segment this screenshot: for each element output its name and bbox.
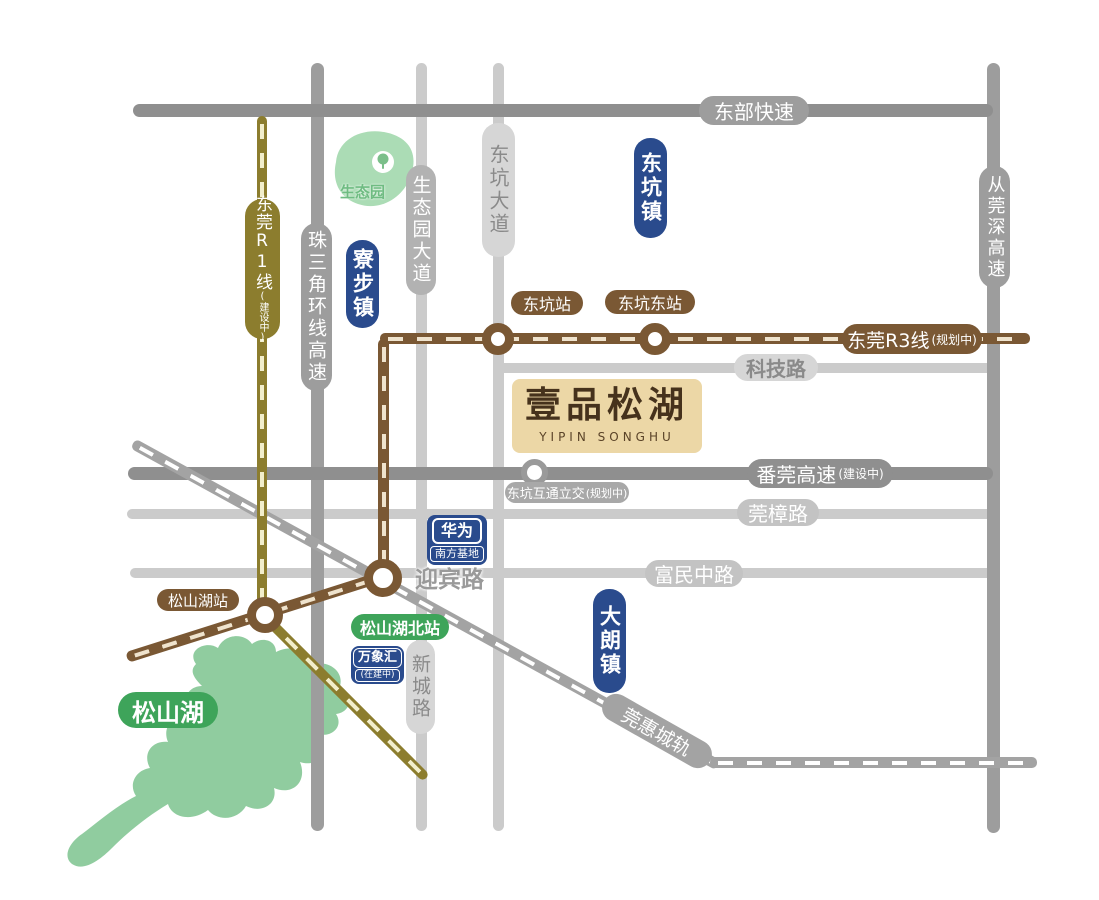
road-label-dongbu: 东部快速 xyxy=(699,96,809,125)
station-label-dongkeng-east-text: 东坑东站 xyxy=(618,290,682,314)
town-label-liaobu: 寮步镇 xyxy=(346,240,379,328)
road-label-xincheng: 新城路 xyxy=(406,640,435,734)
road-label-dongkengdadao-text: 东坑大道 xyxy=(484,144,513,236)
rail-r3-vertical xyxy=(378,339,389,580)
road-label-guanzhang-text: 莞樟路 xyxy=(748,498,808,527)
ecopark-label: 生态园 xyxy=(340,181,385,202)
road-label-fumin-text: 富民中路 xyxy=(654,559,734,588)
project-card: 壹品松湖 YIPIN SONGHU xyxy=(512,379,702,453)
town-label-dalang-text: 大朗镇 xyxy=(595,605,625,677)
poi-huawei-label: 华为 xyxy=(432,518,482,544)
road-label-fanguan: 番莞高速(建设中) xyxy=(747,459,893,488)
town-label-liaobu-text: 寮步镇 xyxy=(348,248,378,320)
station-label-songshanhu: 松山湖站 xyxy=(157,589,239,611)
town-label-dalang: 大朗镇 xyxy=(593,589,626,693)
label-interchange: 东坑互通立交(规划中) xyxy=(505,482,629,503)
rail-r1-vertical xyxy=(257,116,267,616)
town-label-dongkeng-text: 东坑镇 xyxy=(636,152,666,224)
road-label-fanguan-text: 番莞高速 xyxy=(756,459,836,488)
station-label-dongkeng: 东坑站 xyxy=(511,291,583,315)
road-label-congguanshen: 从莞深高速 xyxy=(979,166,1010,288)
road-label-zhusanjiao-text: 珠三角环线高速 xyxy=(303,230,330,384)
songshanhu-lake-shape xyxy=(67,636,349,866)
project-subtitle: YIPIN SONGHU xyxy=(539,430,675,444)
road-zhusanjiao-highway xyxy=(311,63,324,831)
road-label-fumin: 富民中路 xyxy=(645,560,743,587)
poi-huawei-badge: 华为 南方基地 xyxy=(427,515,487,565)
ecopark-label-text: 生态园 xyxy=(340,183,385,201)
road-label-shengtaiyuan-text: 生态园大道 xyxy=(408,175,435,285)
rail-label-r3: 东莞R3线(规划中) xyxy=(842,324,982,354)
station-label-songshanhu-north-text: 松山湖北站 xyxy=(360,615,440,639)
rail-label-r1: 东莞R1线 (建设中) xyxy=(245,199,280,339)
town-label-dongkeng: 东坑镇 xyxy=(634,138,667,238)
road-label-xincheng-text: 新城路 xyxy=(407,654,434,720)
road-label-guanzhang: 莞樟路 xyxy=(737,499,819,526)
songshanhu-station-node xyxy=(247,597,283,633)
road-label-congguanshen-text: 从莞深高速 xyxy=(982,175,1008,280)
road-label-keji: 科技路 xyxy=(734,354,818,381)
label-interchange-status: (规划中) xyxy=(586,485,628,501)
road-label-yingbin: 迎宾路 xyxy=(415,560,484,594)
poi-wanxianghui-badge: 万象汇 (在建中) xyxy=(351,646,404,684)
rail-label-r3-status: (规划中) xyxy=(931,331,976,348)
road-label-fanguan-status: (建设中) xyxy=(838,465,883,482)
label-interchange-text: 东坑互通立交 xyxy=(507,483,585,502)
rail-junction-node xyxy=(364,559,402,597)
location-map: 东部快速 科技路 番莞高速(建设中) 莞樟路 迎宾路 富民中路 珠三角环线高速 … xyxy=(0,0,1099,900)
poi-huawei-sublabel: 南方基地 xyxy=(430,546,484,562)
rail-label-r3-text: 东莞R3线 xyxy=(847,326,929,353)
station-label-songshanhu-north: 松山湖北站 xyxy=(351,614,449,640)
rail-label-r1-status: (建设中) xyxy=(255,291,270,343)
rail-label-r1-text: 东莞R1线 xyxy=(250,195,275,291)
tree-icon xyxy=(371,150,395,178)
station-label-songshanhu-text: 松山湖站 xyxy=(168,590,228,611)
rail-guanhui-horizontal xyxy=(710,757,1037,768)
poi-wanxianghui-label: 万象汇 xyxy=(353,648,402,668)
station-label-dongkeng-east: 东坑东站 xyxy=(605,290,695,314)
project-title: 壹品松湖 xyxy=(525,388,689,424)
dongkeng-station-node xyxy=(482,323,514,355)
road-label-dongkengdadao: 东坑大道 xyxy=(482,123,515,257)
road-label-zhusanjiao: 珠三角环线高速 xyxy=(301,223,332,391)
dongkeng-east-station-node xyxy=(639,323,671,355)
road-label-shengtaiyuan: 生态园大道 xyxy=(406,165,436,295)
road-label-yingbin-text: 迎宾路 xyxy=(415,567,484,593)
road-label-keji-text: 科技路 xyxy=(746,353,806,382)
lake-label-songshanhu: 松山湖 xyxy=(118,692,218,728)
station-label-dongkeng-text: 东坑站 xyxy=(523,291,571,315)
poi-wanxianghui-status: (在建中) xyxy=(355,669,399,683)
lake-label-songshanhu-text: 松山湖 xyxy=(132,693,204,728)
road-label-dongbu-text: 东部快速 xyxy=(714,96,794,125)
